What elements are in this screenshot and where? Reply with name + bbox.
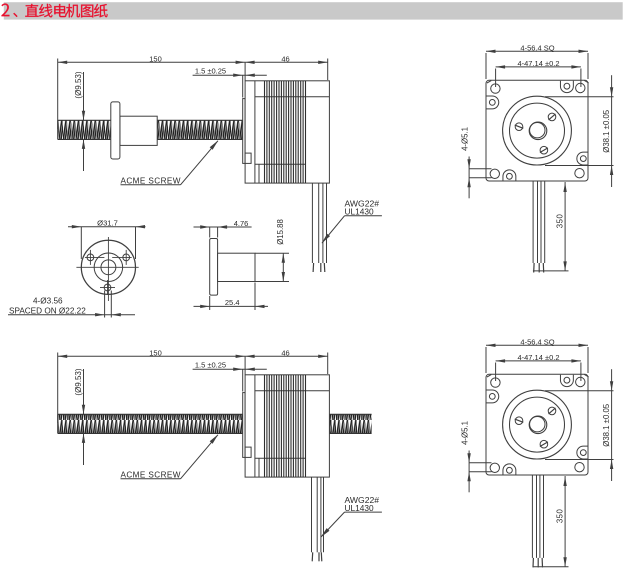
svg-text:Ø38.1 ±0.05: Ø38.1 ±0.05	[602, 109, 611, 153]
svg-text:(Ø9.53): (Ø9.53)	[74, 71, 83, 98]
svg-text:25.4: 25.4	[225, 298, 240, 307]
svg-text:4-Ø3.56: 4-Ø3.56	[33, 296, 63, 305]
svg-text:4-56.4 SQ: 4-56.4 SQ	[520, 337, 554, 346]
svg-text:(Ø9.53): (Ø9.53)	[74, 368, 83, 395]
svg-text:4.76: 4.76	[234, 219, 249, 228]
svg-text:1.5 ±0.25: 1.5 ±0.25	[195, 67, 226, 76]
svg-text:Ø38.1 ±0.05: Ø38.1 ±0.05	[602, 403, 611, 447]
svg-text:4-Ø5.1: 4-Ø5.1	[460, 127, 469, 151]
svg-text:ACME SCREW: ACME SCREW	[121, 176, 181, 185]
svg-text:4-47.14 ±0.2: 4-47.14 ±0.2	[517, 353, 559, 362]
svg-text:46: 46	[281, 348, 289, 357]
svg-text:4-Ø5.1: 4-Ø5.1	[460, 421, 469, 445]
svg-text:4-56.4 SQ: 4-56.4 SQ	[520, 43, 554, 52]
svg-text:4-47.14 ±0.2: 4-47.14 ±0.2	[517, 59, 559, 68]
svg-text:Ø31.7: Ø31.7	[97, 218, 118, 227]
svg-text:Ø15.88: Ø15.88	[276, 219, 285, 245]
svg-text:SPACED ON Ø22.22: SPACED ON Ø22.22	[9, 306, 86, 315]
svg-text:ACME SCREW: ACME SCREW	[121, 470, 181, 479]
svg-text:UL1430: UL1430	[345, 207, 374, 217]
svg-text:UL1430: UL1430	[345, 503, 374, 513]
svg-text:150: 150	[149, 54, 162, 63]
svg-text:350: 350	[555, 508, 564, 523]
svg-text:350: 350	[555, 214, 564, 229]
svg-text:46: 46	[281, 54, 289, 63]
svg-text:150: 150	[149, 348, 162, 357]
svg-text:1.5 ±0.25: 1.5 ±0.25	[195, 361, 226, 370]
